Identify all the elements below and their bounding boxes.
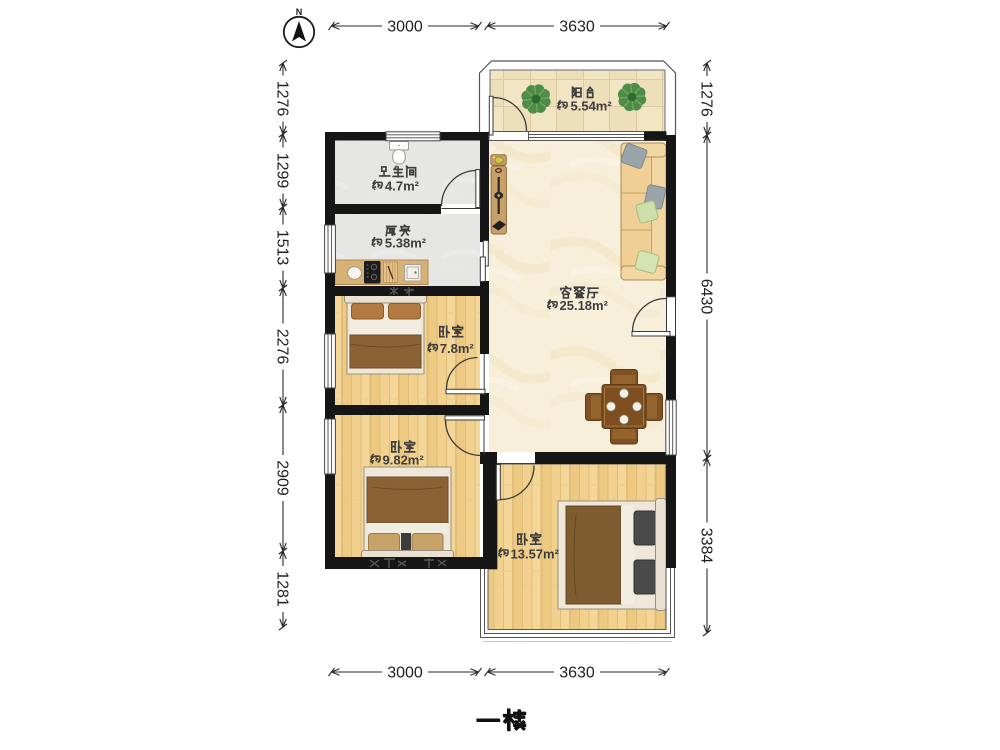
svg-text:1276: 1276 bbox=[697, 81, 714, 117]
svg-text:3384: 3384 bbox=[697, 528, 714, 564]
svg-text:7.8m²: 7.8m² bbox=[440, 341, 475, 356]
svg-text:13.57m²: 13.57m² bbox=[511, 546, 560, 561]
svg-text:N: N bbox=[296, 7, 303, 17]
svg-text:3000: 3000 bbox=[387, 665, 423, 682]
svg-text:9.82m²: 9.82m² bbox=[383, 453, 425, 468]
svg-text:5.54m²: 5.54m² bbox=[571, 99, 613, 114]
svg-text:3630: 3630 bbox=[559, 665, 595, 682]
svg-text:6430: 6430 bbox=[697, 279, 714, 315]
svg-text:4.7m²: 4.7m² bbox=[385, 179, 420, 194]
svg-text:3630: 3630 bbox=[559, 19, 595, 36]
svg-text:25.18m²: 25.18m² bbox=[560, 298, 609, 313]
svg-text:1276: 1276 bbox=[273, 81, 290, 117]
svg-text:5.38m²: 5.38m² bbox=[385, 236, 427, 251]
svg-text:1281: 1281 bbox=[273, 571, 290, 607]
svg-text:3000: 3000 bbox=[387, 19, 423, 36]
svg-text:2276: 2276 bbox=[273, 329, 290, 365]
svg-text:2909: 2909 bbox=[273, 460, 290, 496]
svg-text:1513: 1513 bbox=[273, 230, 290, 266]
svg-text:1299: 1299 bbox=[273, 153, 290, 189]
